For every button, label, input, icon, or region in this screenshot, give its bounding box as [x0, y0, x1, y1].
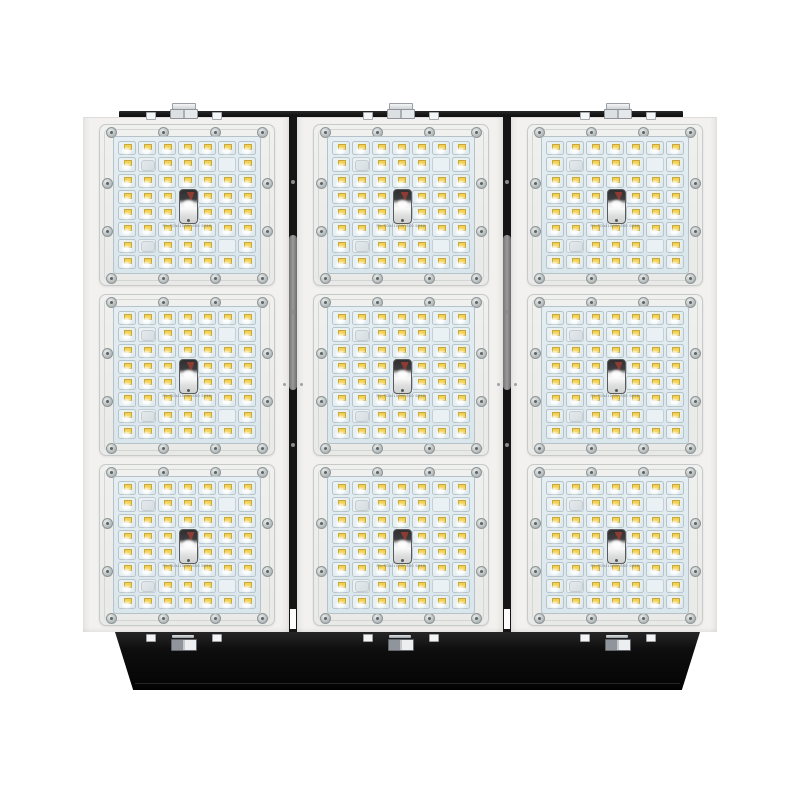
led-cell — [546, 546, 564, 560]
led-cell — [332, 595, 350, 609]
led-module-r1-c2: PL-TDs/100W 840 5016 — [313, 124, 489, 286]
led-glare — [336, 416, 345, 422]
led-glare — [142, 537, 151, 543]
led-glare — [122, 399, 131, 405]
blank-lens-inner — [141, 500, 154, 511]
led-cell — [586, 481, 604, 495]
led-glare — [550, 262, 559, 268]
led-glare — [610, 164, 619, 170]
led-glare — [610, 334, 619, 340]
led-cell — [606, 562, 624, 576]
led-cell — [626, 562, 644, 576]
led-glare — [610, 246, 619, 252]
led-cell — [118, 141, 136, 155]
led-glare — [590, 351, 599, 357]
led-cell — [412, 481, 430, 495]
column-gap-1 — [289, 117, 297, 632]
blank-lens-cell — [566, 327, 584, 341]
led-glare — [122, 164, 131, 170]
led-glare — [242, 229, 251, 235]
led-glare — [376, 164, 385, 170]
module-screw — [424, 273, 435, 284]
led-glare — [336, 488, 345, 494]
blank-lens-inner — [569, 500, 582, 511]
led-cell — [606, 327, 624, 341]
led-cell — [218, 546, 236, 560]
led-glare — [650, 553, 659, 559]
blank-lens-cell — [432, 239, 450, 253]
driver-clip-bar — [389, 635, 411, 638]
led-cell — [158, 514, 176, 528]
led-cell — [198, 239, 216, 253]
led-cell — [666, 360, 684, 374]
led-glare — [396, 318, 405, 324]
led-cell — [218, 206, 236, 220]
led-glare — [396, 416, 405, 422]
led-glare — [242, 197, 251, 203]
led-cell — [646, 255, 664, 269]
lens-plate: PL-TDs/100W 840 5016 — [113, 306, 261, 444]
led-glare — [202, 262, 211, 268]
led-cell — [666, 376, 684, 390]
led-cell — [198, 425, 216, 439]
led-glare — [630, 504, 639, 510]
led-cell — [666, 190, 684, 204]
panel-rivet — [497, 383, 500, 386]
led-cell — [352, 141, 370, 155]
led-glare — [650, 432, 659, 438]
led-cell — [372, 514, 390, 528]
led-glare — [416, 586, 425, 592]
led-glare — [416, 334, 425, 340]
led-glare — [162, 521, 171, 527]
led-glare — [416, 213, 425, 219]
led-cell — [178, 562, 196, 576]
module-screw — [372, 273, 383, 284]
blank-lens-inner — [569, 160, 582, 171]
led-cell — [158, 190, 176, 204]
led-glare — [670, 229, 679, 235]
led-cell — [138, 530, 156, 544]
led-glare — [242, 432, 251, 438]
led-glare — [416, 399, 425, 405]
led-cell — [646, 530, 664, 544]
led-cell — [198, 311, 216, 325]
led-glare — [456, 416, 465, 422]
led-glare — [436, 213, 445, 219]
module-screw — [638, 273, 649, 284]
led-glare — [162, 553, 171, 559]
led-cell — [432, 376, 450, 390]
led-cell — [626, 327, 644, 341]
led-cell — [198, 190, 216, 204]
panel-rivet — [514, 383, 517, 386]
led-cell — [412, 311, 430, 325]
led-cell — [118, 360, 136, 374]
led-glare — [162, 148, 171, 154]
led-glare — [416, 262, 425, 268]
led-cell — [432, 530, 450, 544]
gap-pin — [291, 443, 295, 447]
led-cell — [238, 157, 256, 171]
led-glare — [590, 197, 599, 203]
led-cell — [218, 222, 236, 236]
led-glare — [416, 181, 425, 187]
led-glare — [670, 246, 679, 252]
led-glare — [416, 367, 425, 373]
led-cell — [158, 425, 176, 439]
led-cell — [666, 409, 684, 423]
led-glare — [550, 367, 559, 373]
led-glare — [436, 318, 445, 324]
led-cell — [178, 497, 196, 511]
led-glare — [356, 197, 365, 203]
led-glare — [416, 148, 425, 154]
led-cell — [352, 595, 370, 609]
driver-nut — [646, 634, 656, 642]
driver-nut — [212, 634, 222, 642]
module-screw — [638, 613, 649, 624]
blank-lens-cell — [218, 157, 236, 171]
led-cell — [118, 344, 136, 358]
led-glare — [416, 488, 425, 494]
module-screw — [424, 613, 435, 624]
led-glare — [670, 432, 679, 438]
led-glare — [376, 246, 385, 252]
led-cell — [332, 157, 350, 171]
led-glare — [162, 504, 171, 510]
led-cell — [452, 530, 470, 544]
module-screw — [471, 273, 482, 284]
blank-lens-cell — [432, 157, 450, 171]
led-cell — [178, 392, 196, 406]
led-cell — [332, 425, 350, 439]
led-cell — [158, 157, 176, 171]
led-cell — [566, 392, 584, 406]
led-cell — [352, 425, 370, 439]
led-cell — [412, 595, 430, 609]
led-glare — [162, 213, 171, 219]
led-cell — [412, 157, 430, 171]
led-glare — [162, 246, 171, 252]
led-glare — [376, 399, 385, 405]
blank-lens-cell — [646, 579, 664, 593]
led-cell — [332, 546, 350, 560]
led-glare — [670, 262, 679, 268]
blank-lens-cell — [646, 157, 664, 171]
blank-lens-cell — [218, 239, 236, 253]
led-glare — [670, 488, 679, 494]
led-glare — [376, 197, 385, 203]
led-glare — [142, 181, 151, 187]
led-glare — [630, 488, 639, 494]
led-cell — [452, 222, 470, 236]
led-cell — [606, 514, 624, 528]
led-cell — [646, 514, 664, 528]
led-glare — [242, 148, 251, 154]
led-glare — [336, 367, 345, 373]
led-glare — [356, 488, 365, 494]
led-cell — [198, 481, 216, 495]
led-glare — [182, 399, 191, 405]
led-cell — [372, 255, 390, 269]
led-cell — [606, 409, 624, 423]
led-cell — [218, 360, 236, 374]
led-cell — [586, 546, 604, 560]
led-glare — [182, 504, 191, 510]
led-cell — [118, 222, 136, 236]
led-glare — [336, 213, 345, 219]
led-cell — [198, 392, 216, 406]
led-cell — [606, 425, 624, 439]
led-glare — [376, 334, 385, 340]
module-screw — [690, 178, 701, 189]
led-cell — [432, 360, 450, 374]
led-glare — [550, 553, 559, 559]
led-cell — [198, 174, 216, 188]
blank-lens-cell — [138, 239, 156, 253]
led-cell — [238, 579, 256, 593]
led-glare — [650, 488, 659, 494]
blank-lens-inner — [355, 330, 368, 341]
blank-lens-cell — [218, 409, 236, 423]
led-glare — [376, 488, 385, 494]
led-cell — [566, 360, 584, 374]
led-glare — [376, 504, 385, 510]
led-cell — [372, 425, 390, 439]
led-cell — [332, 344, 350, 358]
led-cell — [332, 514, 350, 528]
led-glare — [590, 367, 599, 373]
led-glare — [202, 229, 211, 235]
led-glare — [650, 197, 659, 203]
led-cell — [178, 239, 196, 253]
led-cell — [332, 222, 350, 236]
led-cell — [646, 311, 664, 325]
led-cell — [546, 425, 564, 439]
driver-clip-block — [171, 639, 197, 651]
led-glare — [396, 488, 405, 494]
led-cell — [138, 206, 156, 220]
led-cell — [586, 409, 604, 423]
led-glare — [670, 521, 679, 527]
led-glare — [242, 586, 251, 592]
led-cell — [452, 239, 470, 253]
module-screw — [320, 613, 331, 624]
led-glare — [336, 521, 345, 527]
led-glare — [242, 181, 251, 187]
led-cell — [198, 514, 216, 528]
led-cell — [332, 392, 350, 406]
led-glare — [630, 367, 639, 373]
led-cell — [392, 514, 410, 528]
led-cell — [432, 141, 450, 155]
led-cell — [546, 311, 564, 325]
led-glare — [182, 148, 191, 154]
led-glare — [456, 367, 465, 373]
led-glare — [222, 318, 231, 324]
led-cell — [452, 157, 470, 171]
led-glare — [142, 521, 151, 527]
led-glare — [336, 246, 345, 252]
led-cell — [546, 579, 564, 593]
led-cell — [646, 546, 664, 560]
module-screw — [586, 613, 597, 624]
led-glare — [550, 504, 559, 510]
led-cell — [566, 255, 584, 269]
led-cell — [432, 174, 450, 188]
blank-lens-cell — [138, 409, 156, 423]
led-glare — [416, 537, 425, 543]
led-cell — [626, 239, 644, 253]
center-reflector — [393, 529, 412, 564]
led-glare — [122, 488, 131, 494]
led-glare — [416, 416, 425, 422]
led-cell — [666, 392, 684, 406]
rail-bolt — [170, 103, 196, 117]
led-cell — [178, 425, 196, 439]
led-glare — [202, 521, 211, 527]
led-glare — [456, 181, 465, 187]
led-cell — [332, 190, 350, 204]
led-glare — [202, 246, 211, 252]
center-reflector — [179, 359, 198, 394]
led-cell — [586, 425, 604, 439]
led-glare — [570, 399, 579, 405]
led-glare — [356, 213, 365, 219]
led-glare — [376, 213, 385, 219]
led-cell — [432, 344, 450, 358]
led-cell — [412, 514, 430, 528]
led-glare — [436, 148, 445, 154]
led-glare — [162, 602, 171, 608]
led-glare — [396, 504, 405, 510]
led-cell — [452, 141, 470, 155]
led-cell — [158, 360, 176, 374]
led-cell — [646, 174, 664, 188]
module-screw — [257, 443, 268, 454]
led-glare — [202, 399, 211, 405]
module-screw — [530, 348, 541, 359]
led-cell — [452, 344, 470, 358]
module-screw — [476, 518, 487, 529]
led-cell — [546, 530, 564, 544]
module-screw — [690, 396, 701, 407]
led-glare — [356, 262, 365, 268]
led-cell — [432, 190, 450, 204]
led-glare — [122, 148, 131, 154]
led-cell — [546, 222, 564, 236]
module-screw — [106, 273, 117, 284]
led-glare — [376, 602, 385, 608]
blank-lens-cell — [566, 239, 584, 253]
center-reflector — [179, 529, 198, 564]
blank-lens-cell — [138, 579, 156, 593]
led-cell — [138, 255, 156, 269]
led-cell — [218, 481, 236, 495]
led-cell — [626, 344, 644, 358]
led-glare — [416, 351, 425, 357]
led-cell — [138, 311, 156, 325]
led-cell — [158, 239, 176, 253]
module-screw — [316, 518, 327, 529]
led-cell — [392, 409, 410, 423]
led-glare — [356, 537, 365, 543]
module-screw — [690, 348, 701, 359]
led-glare — [650, 318, 659, 324]
led-cell — [372, 327, 390, 341]
led-glare — [336, 537, 345, 543]
led-glare — [630, 432, 639, 438]
led-glare — [630, 383, 639, 389]
led-cell — [372, 239, 390, 253]
led-glare — [456, 602, 465, 608]
led-glare — [242, 416, 251, 422]
led-cell — [412, 530, 430, 544]
led-cell — [586, 579, 604, 593]
led-glare — [456, 488, 465, 494]
blank-lens-cell — [432, 497, 450, 511]
led-glare — [122, 213, 131, 219]
led-cell — [238, 222, 256, 236]
led-glare — [336, 351, 345, 357]
led-cell — [178, 255, 196, 269]
led-glare — [142, 229, 151, 235]
led-glare — [570, 553, 579, 559]
led-glare — [630, 586, 639, 592]
led-cell — [432, 425, 450, 439]
led-cell — [238, 344, 256, 358]
led-cell — [178, 595, 196, 609]
gap-pin — [505, 180, 509, 184]
led-glare — [590, 262, 599, 268]
led-glare — [222, 569, 231, 575]
led-cell — [646, 141, 664, 155]
led-cell — [118, 481, 136, 495]
lens-plate: PL-TDs/100W 840 5016 — [541, 476, 689, 614]
led-cell — [158, 481, 176, 495]
led-cell — [546, 157, 564, 171]
led-cell — [412, 174, 430, 188]
led-cell — [158, 255, 176, 269]
led-cell — [218, 530, 236, 544]
led-glare — [162, 334, 171, 340]
led-cell — [118, 376, 136, 390]
led-cell — [452, 497, 470, 511]
led-cell — [238, 376, 256, 390]
led-glare — [590, 586, 599, 592]
led-glare — [436, 262, 445, 268]
led-cell — [238, 481, 256, 495]
led-cell — [118, 255, 136, 269]
led-cell — [238, 174, 256, 188]
led-cell — [626, 206, 644, 220]
led-cell — [566, 311, 584, 325]
led-glare — [456, 569, 465, 575]
led-cell — [666, 206, 684, 220]
led-glare — [122, 197, 131, 203]
led-glare — [456, 197, 465, 203]
led-cell — [138, 425, 156, 439]
led-cell — [178, 409, 196, 423]
led-glare — [336, 383, 345, 389]
blank-lens-cell — [432, 327, 450, 341]
led-cell — [606, 392, 624, 406]
led-cell — [218, 141, 236, 155]
led-glare — [376, 229, 385, 235]
led-cell — [566, 481, 584, 495]
led-glare — [222, 602, 231, 608]
